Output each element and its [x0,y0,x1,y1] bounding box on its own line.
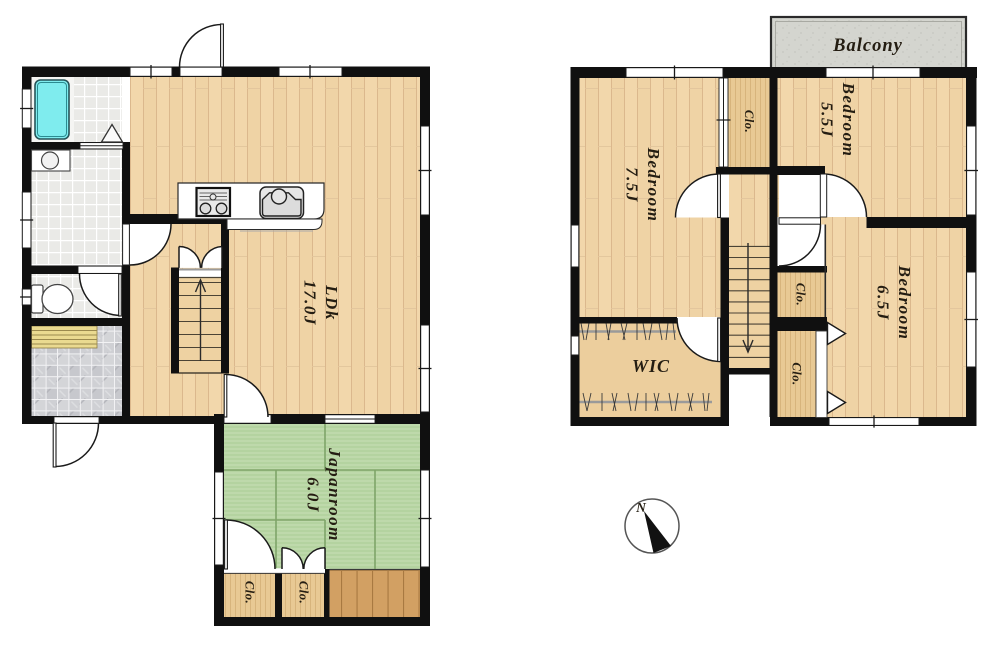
svg-text:Clo.: Clo. [296,581,310,604]
svg-text:Clo.: Clo. [789,362,803,385]
svg-text:Balcony: Balcony [832,36,903,56]
svg-text:Clo.: Clo. [742,110,756,133]
svg-text:N: N [635,500,647,515]
svg-text:WIC: WIC [632,356,670,376]
svg-text:Clo.: Clo. [242,581,256,604]
svg-text:Clo.: Clo. [793,283,807,306]
